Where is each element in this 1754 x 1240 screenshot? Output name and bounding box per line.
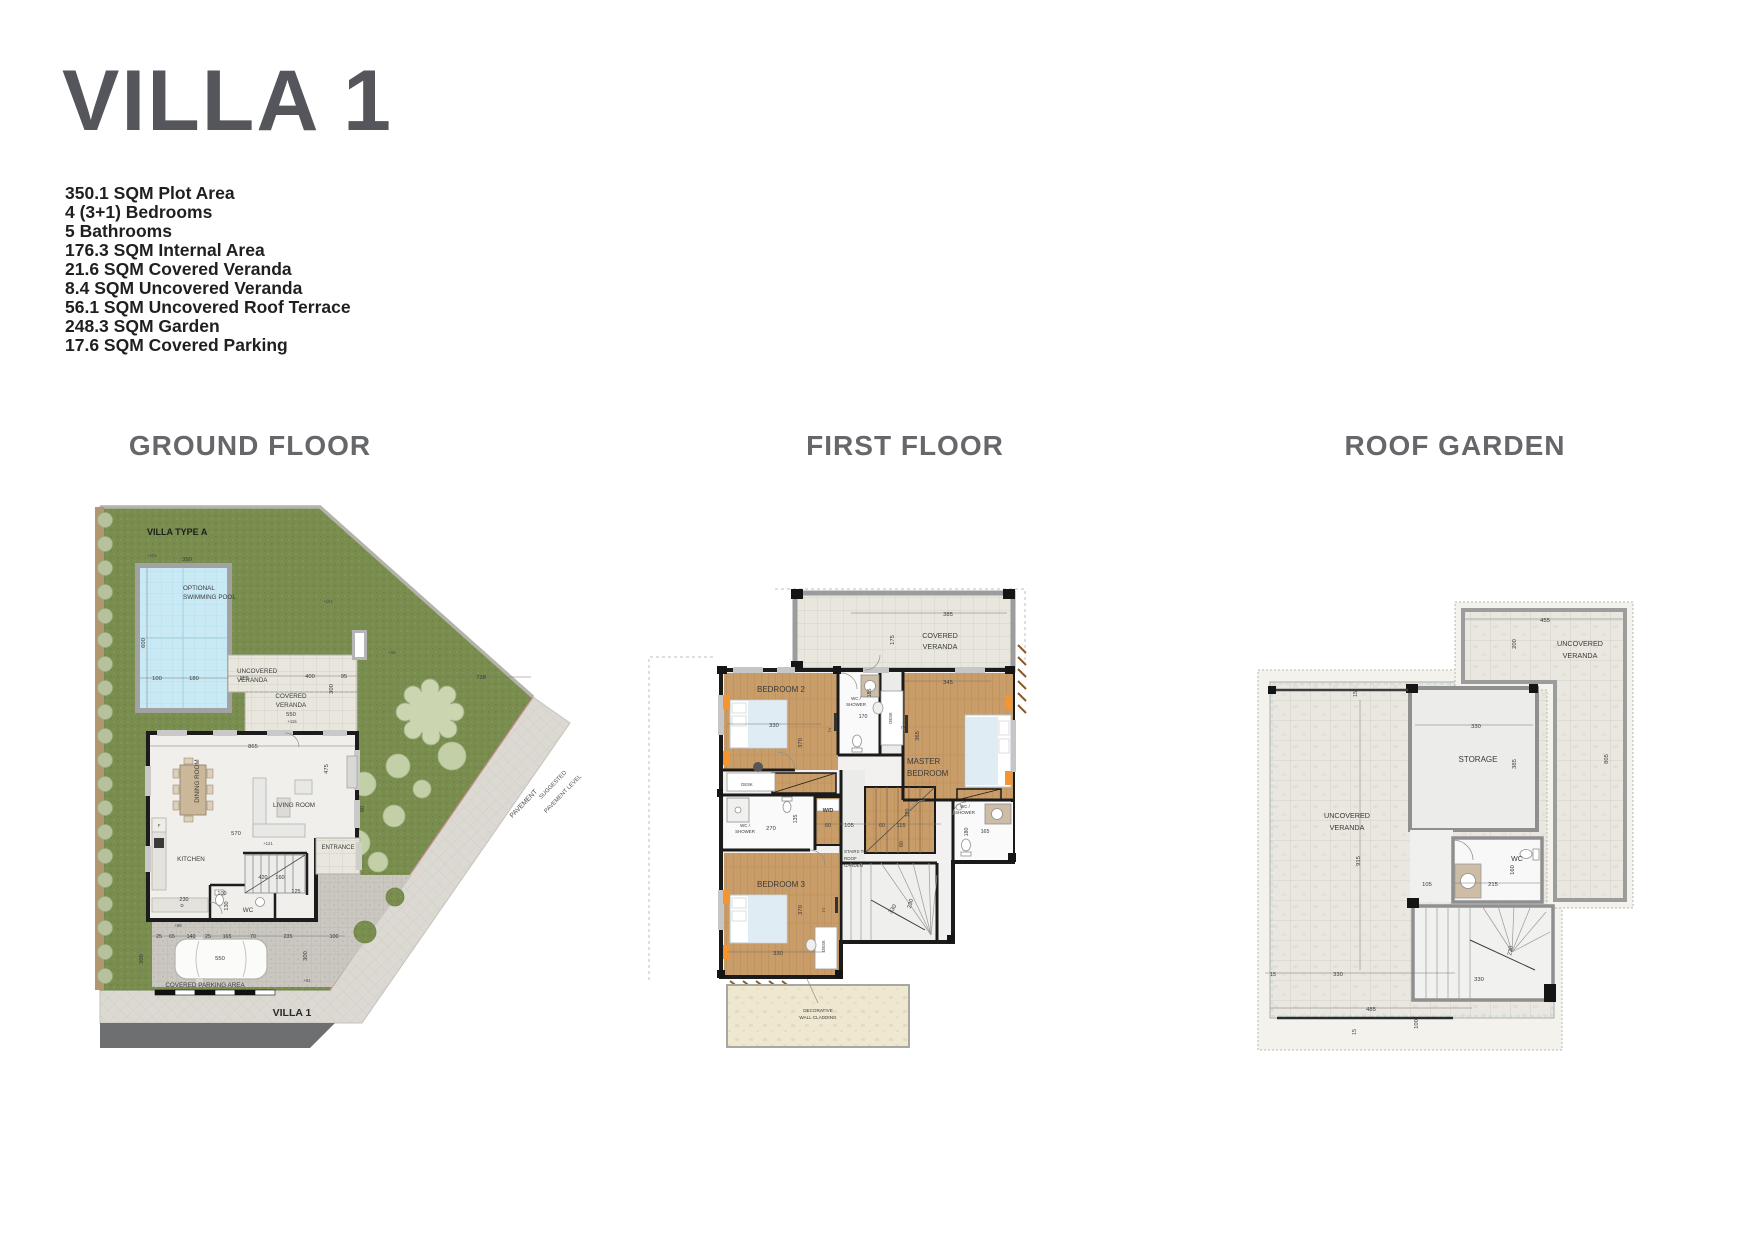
- dim-label: 60: [825, 823, 831, 829]
- tv-unit: [347, 756, 357, 788]
- label-decorative-cladding-2: WALL CLADDING: [799, 1015, 837, 1020]
- label-uncovered-veranda-left-2: VERANDA: [1330, 823, 1365, 832]
- label-kitchen: KITCHEN: [177, 856, 205, 863]
- spec-line: 21.6 SQM Covered Veranda: [65, 260, 351, 279]
- dim-label: 550: [286, 712, 296, 718]
- label-suggested-pavement-2: PAVEMENT LEVEL: [544, 773, 584, 814]
- dim-label: 570: [231, 831, 241, 837]
- dim-label: 865: [248, 744, 258, 750]
- corridor: [1410, 830, 1453, 902]
- outdoor-shower-inner: [355, 633, 364, 657]
- dim-label: 350: [182, 557, 192, 563]
- dim-label: 738: [476, 675, 486, 681]
- dim-label: 915: [1356, 856, 1362, 866]
- dim-label: 65: [169, 934, 175, 940]
- dim-label: F: [158, 823, 161, 828]
- label-villa-1: VILLA 1: [273, 1007, 312, 1019]
- dim-label: 455: [1540, 618, 1550, 624]
- dim-label: 270: [766, 826, 776, 832]
- dim-label: TV: [901, 726, 906, 730]
- dim-label: 475: [324, 764, 330, 774]
- label-stairs-to-roof-2: ROOF: [844, 856, 857, 861]
- spec-line: 350.1 SQM Plot Area: [65, 184, 351, 203]
- dim-label: WC /: [960, 804, 971, 809]
- dim-label: +101: [147, 553, 157, 558]
- dim-label: 60: [899, 841, 905, 847]
- dim-label: 180: [964, 828, 970, 837]
- dim-label: 15: [1352, 1029, 1358, 1035]
- dim-label: DESK: [821, 940, 826, 952]
- dim-label: 330: [1474, 977, 1484, 983]
- dim-label: +91: [303, 978, 311, 983]
- dim-label: 100: [217, 891, 226, 897]
- dim-label: 115: [896, 823, 905, 829]
- road: [100, 1023, 335, 1048]
- dim-label: 805: [1604, 754, 1610, 764]
- label-storage: STORAGE: [1459, 755, 1498, 764]
- label-uncovered-veranda-left-1: UNCOVERED: [1324, 811, 1370, 820]
- dim-label: 200: [1512, 639, 1518, 649]
- cladding-hatch: [1018, 645, 1026, 713]
- spec-line: 17.6 SQM Covered Parking: [65, 336, 351, 355]
- label-master-bedroom-2: BEDROOM: [907, 769, 949, 778]
- dim-label: 15: [1270, 972, 1276, 978]
- label-uncovered-veranda-right-2: VERANDA: [1563, 651, 1598, 660]
- label-bedroom-3: BEDROOM 3: [757, 880, 806, 889]
- label-uncovered-veranda-right-1: UNCOVERED: [1557, 639, 1603, 648]
- dim-label: SHOWER: [735, 829, 755, 834]
- dim-label: 15: [1353, 691, 1359, 697]
- label-living-room: LIVING ROOM: [273, 802, 315, 809]
- label-master-bedroom-1: MASTER: [907, 757, 941, 766]
- decorative-cladding: [727, 979, 909, 1047]
- label-uncovered-veranda-2: VERANDA: [237, 677, 268, 684]
- dim-label: +116: [287, 719, 297, 724]
- dim-label: 365: [915, 731, 921, 741]
- dim-label: 185: [867, 689, 873, 698]
- label-optional-pool-1: OPTIONAL: [183, 585, 215, 592]
- scale-bar: [155, 990, 275, 995]
- ground-floor-plan: VILLA TYPE AOPTIONALSWIMMING POOL3506001…: [95, 450, 610, 1050]
- dim-label: 165: [223, 934, 232, 940]
- dim-label: 300: [329, 684, 335, 694]
- label-entrance: ENTRANCE: [321, 845, 354, 851]
- label-covered-veranda-2: VERANDA: [276, 702, 307, 709]
- dim-label: 420: [258, 875, 267, 881]
- stairs: [245, 855, 305, 893]
- dim-label: TV: [822, 907, 826, 912]
- label-villa-type-a: VILLA TYPE A: [147, 527, 208, 537]
- dim-label: 330: [1333, 972, 1343, 978]
- dim-label: 100: [152, 676, 162, 682]
- washer-dryer: [815, 797, 841, 845]
- spec-line: 56.1 SQM Uncovered Roof Terrace: [65, 298, 351, 317]
- label-bedroom-2: BEDROOM 2: [757, 685, 806, 694]
- spec-line: 8.4 SQM Uncovered Veranda: [65, 279, 351, 298]
- dim-label: 165: [981, 829, 990, 835]
- dim-label: 160: [1510, 865, 1516, 875]
- dim-label: WC /: [740, 823, 751, 828]
- dim-label: +101: [323, 599, 333, 604]
- spec-line: 176.3 SQM Internal Area: [65, 241, 351, 260]
- label-stairs-to-roof-3: GARDEN: [844, 863, 863, 868]
- dim-label: 550: [215, 956, 225, 962]
- dim-label: +121: [263, 841, 273, 846]
- dim-label: DESK: [741, 782, 753, 787]
- label-optional-pool-2: SWIMMING POOL: [183, 594, 236, 601]
- dim-label: 105: [844, 823, 854, 829]
- wc-room: [1453, 838, 1542, 902]
- dim-label: 300: [303, 951, 309, 961]
- dim-label: 370: [798, 905, 804, 915]
- dim-label: 80: [360, 806, 366, 812]
- dim-label: 175: [890, 635, 896, 645]
- spec-line: 248.3 SQM Garden: [65, 317, 351, 336]
- dim-label: 25: [205, 934, 211, 940]
- floorplan-sheet: { "page": {"title": "VILLA 1"}, "specs":…: [0, 0, 1754, 1240]
- dim-label: +95: [388, 650, 396, 655]
- first-floor-plan: COVEREDVERANDA385175BEDROOM 2330370TVWC …: [635, 545, 1030, 1105]
- dim-label: 130: [224, 901, 230, 910]
- label-covered-veranda-1: COVERED: [922, 631, 958, 640]
- dim-label: 300: [139, 954, 145, 964]
- dim-label: 125: [291, 889, 300, 895]
- hedge: [354, 921, 376, 943]
- dim-label: 95: [341, 674, 347, 680]
- dim-label: D: [180, 903, 183, 908]
- dim-label: WC /: [851, 696, 862, 701]
- spec-line: 5 Bathrooms: [65, 222, 351, 241]
- dim-label: SHOWER: [846, 702, 866, 707]
- dim-label: 235: [284, 934, 293, 940]
- dim-label: 330: [769, 723, 779, 729]
- label-wc: WC: [243, 907, 254, 914]
- dim-label: +88: [174, 923, 182, 928]
- dim-label: 100: [330, 934, 339, 940]
- planting-strip: [95, 507, 104, 990]
- dim-label: SHOWER: [955, 810, 975, 815]
- dim-label: 135: [793, 815, 799, 824]
- page-title: VILLA 1: [62, 52, 393, 151]
- dim-label: 170: [859, 714, 868, 720]
- label-decorative-cladding-1: DECORATIVE: [803, 1008, 833, 1013]
- dim-label: 370: [798, 738, 804, 748]
- dim-label: 100: [1414, 1019, 1420, 1029]
- dim-label: 385: [1512, 759, 1518, 769]
- dim-label: TV: [828, 727, 832, 732]
- large-tree: [396, 679, 464, 745]
- dim-label: 485: [1366, 1007, 1376, 1013]
- label-covered-parking-area: COVERED PARKING AREA: [165, 982, 245, 989]
- label-uncovered-veranda-1: UNCOVERED: [237, 668, 278, 675]
- label-dining-room: DINING ROOM: [194, 759, 201, 802]
- dim-label: 330: [773, 951, 783, 957]
- label-wc: WC: [1511, 856, 1523, 863]
- bed-bedroom-3: [730, 895, 787, 943]
- label-stairs-to-roof-1: STAIRS TO: [844, 849, 867, 854]
- section-title-roof-garden: ROOF GARDEN: [1300, 430, 1610, 462]
- dim-label: 60: [879, 823, 885, 829]
- dim-label: 140: [187, 934, 196, 940]
- dim-label: 385: [943, 612, 953, 618]
- dim-label: 120: [905, 809, 911, 818]
- dim-label: 70: [250, 934, 256, 940]
- dim-label: 345: [943, 680, 953, 686]
- dim-label: 330: [1471, 724, 1481, 730]
- dim-label: 600: [141, 638, 147, 648]
- dim-label: 160: [275, 875, 284, 881]
- dim-label: 400: [305, 674, 315, 680]
- bed-master: [965, 715, 1011, 787]
- entrance-porch: [316, 838, 362, 874]
- roof-stairs: [1407, 898, 1556, 1002]
- dim-label: DESK: [888, 712, 893, 724]
- dim-label: 215: [1488, 882, 1498, 888]
- label-covered-veranda-1: COVERED: [275, 693, 307, 700]
- dim-label: 180: [189, 676, 199, 682]
- spec-line: 4 (3+1) Bedrooms: [65, 203, 351, 222]
- label-covered-veranda-2: VERANDA: [923, 642, 958, 651]
- section-title-first-floor: FIRST FLOOR: [755, 430, 1055, 462]
- roof-garden-plan: 455UNCOVEREDVERANDA20080515330STORAGE385…: [1250, 540, 1660, 1060]
- storage-room: [1406, 684, 1538, 852]
- hedge: [386, 888, 404, 906]
- covered-veranda: [791, 589, 1015, 671]
- label-wd: W/D: [823, 808, 834, 814]
- dim-label: 105: [1422, 882, 1432, 888]
- spec-list: 350.1 SQM Plot Area4 (3+1) Bedrooms5 Bat…: [65, 184, 351, 355]
- dim-label: 25: [156, 934, 162, 940]
